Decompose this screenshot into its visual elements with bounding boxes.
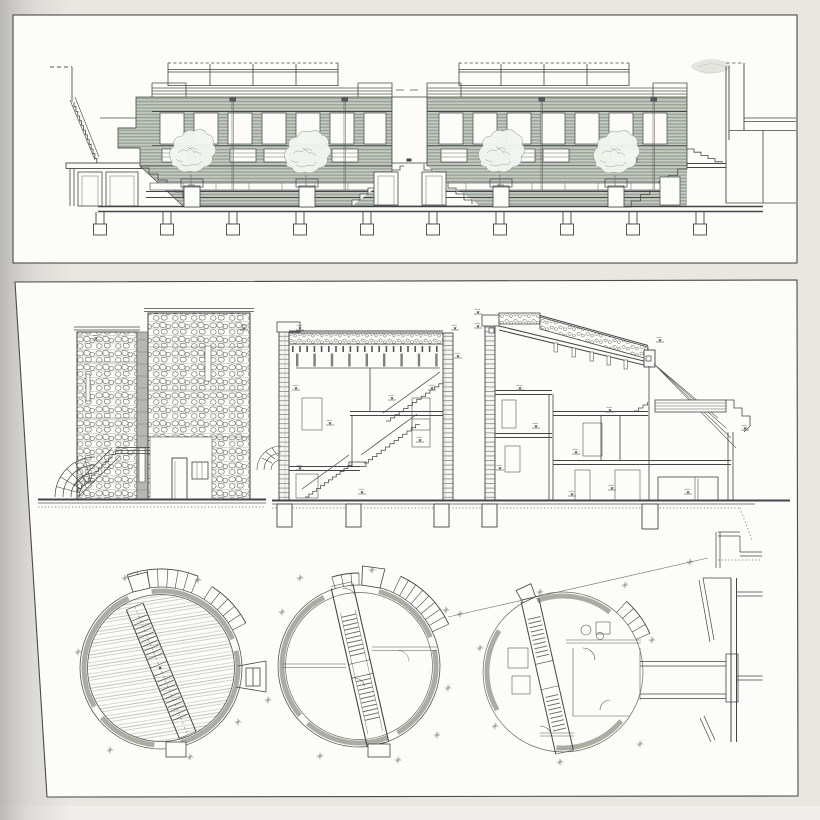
stair-landing-slab (66, 163, 148, 169)
corridor-window (422, 172, 446, 205)
right-wall-cut (443, 333, 453, 500)
bottom-notch (166, 742, 186, 757)
parapet-block (482, 315, 499, 326)
bottom-panel (15, 280, 798, 797)
pipe-cap (539, 98, 546, 102)
anchor-plate (489, 328, 494, 333)
pipe-cap (230, 98, 237, 102)
entry-recess (392, 97, 427, 163)
ribbon-window-strip (433, 183, 671, 190)
lower-window-frame (78, 172, 102, 206)
lower-window-frame (660, 177, 680, 205)
tower-door (172, 458, 187, 500)
roof-ballast-band (289, 333, 443, 344)
pipe-cap (342, 98, 349, 102)
pipe-cap (651, 98, 658, 102)
stone-tower-elevation (55, 309, 254, 501)
left-wall-cut (279, 330, 289, 500)
bottom-tab (368, 744, 390, 757)
parapet-stone-band (499, 313, 540, 324)
tower-window (192, 462, 208, 479)
left-wall-cut (485, 325, 495, 500)
corridor-window (374, 172, 398, 205)
slot-window (205, 346, 211, 381)
top-panel (13, 15, 797, 263)
slot-window (86, 374, 90, 401)
drawing-canvas (0, 0, 820, 820)
page-bottom-strip (0, 806, 820, 820)
door-mark (407, 159, 412, 162)
scanned-drawing-page (0, 0, 820, 820)
lower-window-frame (106, 172, 138, 206)
anchor-plate (646, 356, 651, 361)
